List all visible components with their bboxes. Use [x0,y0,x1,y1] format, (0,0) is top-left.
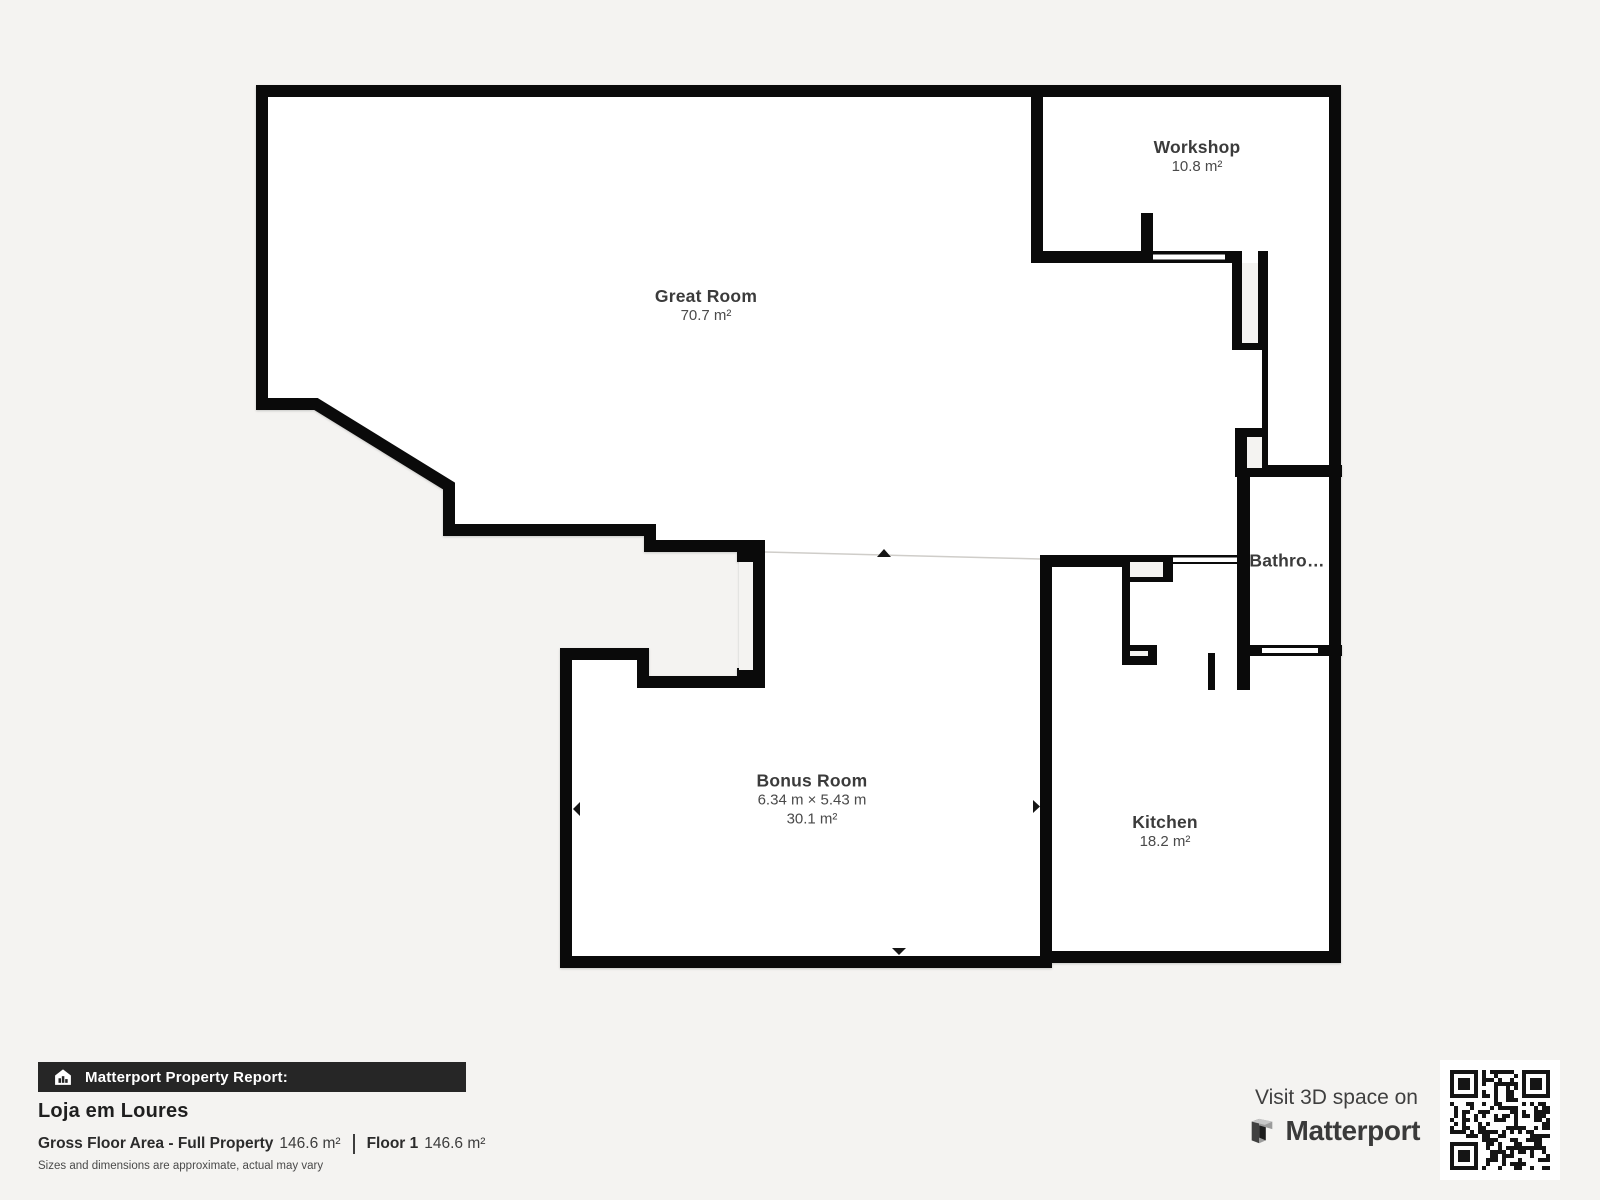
door-line [1172,555,1237,558]
door-opening [1153,255,1225,260]
house-chart-icon [53,1067,73,1087]
room-dimensions: 6.34 m × 5.43 m [757,792,868,810]
interior-wall [1232,251,1242,350]
room-area: 30.1 m² [757,811,868,829]
room-area: 10.8 m² [1154,158,1241,176]
interior-wall [1040,555,1052,960]
report-bar-label: Matterport Property Report: [85,1069,288,1086]
qr-code-box [1440,1060,1560,1180]
gross-floor-area-value: 146.6 m² [279,1135,340,1153]
room-name: Bonus Room [757,772,868,791]
room-name: Kitchen [1132,813,1198,832]
area-summary: Gross Floor Area - Full Property 146.6 m… [38,1134,485,1154]
floor-plan [0,0,1600,1200]
interior-wall [1262,350,1268,430]
property-name: Loja em Loures [38,1100,189,1123]
disclaimer-text: Sizes and dimensions are approximate, ac… [38,1160,323,1172]
interior-wall [737,550,761,562]
void-shaft [739,562,753,670]
room-name: Great Room [655,287,757,306]
room-label-bonus-room: Bonus Room 6.34 m × 5.43 m 30.1 m² [757,772,868,829]
room-label-bathroom: Bathro… [1249,552,1324,571]
room-area: 70.7 m² [655,307,757,325]
door-opening [1262,648,1318,653]
matterport-wordmark: Matterport [1286,1115,1420,1147]
report-title-bar: Matterport Property Report: [38,1062,466,1092]
gross-floor-area-label: Gross Floor Area - Full Property [38,1135,273,1153]
interior-wall [1031,91,1043,263]
floor-label: Floor 1 [367,1135,419,1153]
page: { "colors": { "background": "#f4f3f1", "… [0,0,1600,1200]
room-label-workshop: Workshop 10.8 m² [1154,138,1241,176]
visit-3d-cta: Visit 3D space on Matterport [1040,1086,1420,1147]
interior-wall [1208,653,1215,690]
room-name: Bathro… [1249,552,1324,571]
void-shaft [1130,651,1148,656]
interior-wall [1258,251,1268,350]
room-label-kitchen: Kitchen 18.2 m² [1132,813,1198,851]
visit-text: Visit 3D space on [1040,1086,1420,1110]
room-area: 18.2 m² [1132,833,1198,851]
door-line [1172,562,1237,564]
void-shaft [1242,263,1258,343]
floor-value: 146.6 m² [424,1135,485,1153]
room-name: Workshop [1154,138,1241,157]
divider [353,1134,355,1154]
room-label-great-room: Great Room 70.7 m² [655,287,757,325]
void-shaft [1130,562,1163,577]
void-shaft [1247,437,1262,468]
matterport-logo-icon [1247,1116,1277,1146]
qr-code[interactable] [1450,1070,1550,1170]
interior-wall [1141,213,1153,257]
